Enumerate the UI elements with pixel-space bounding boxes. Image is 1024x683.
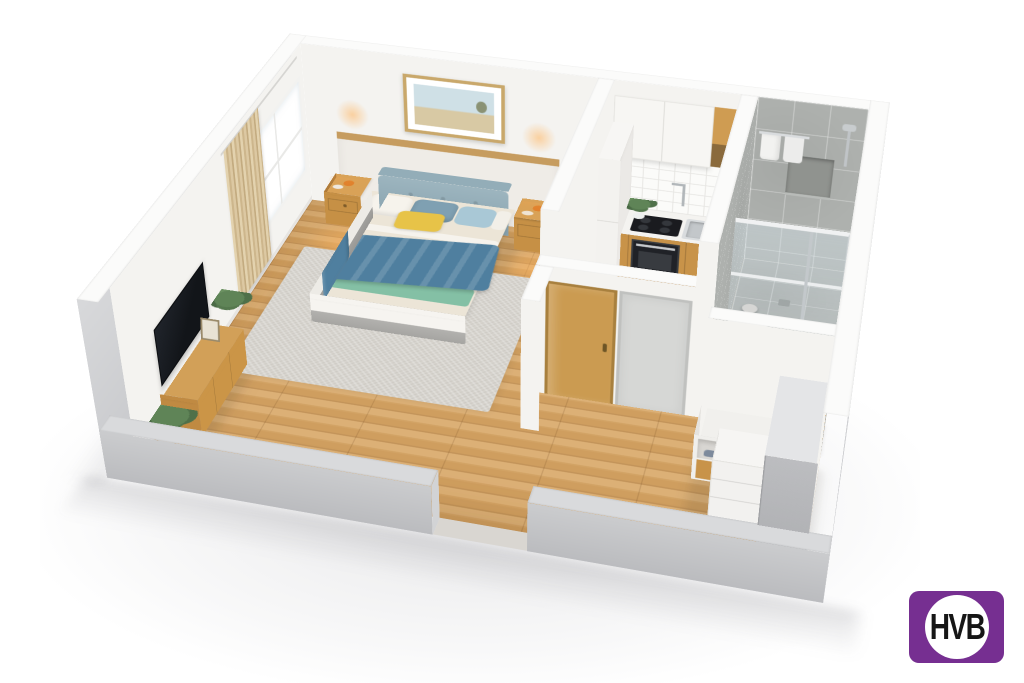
cabinet-seam (683, 242, 686, 278)
towel-2 (783, 137, 805, 164)
decor-shell (521, 210, 535, 216)
hvb-logo-circle: HVB (925, 595, 989, 659)
hvb-logo-badge: HVB (909, 591, 1004, 663)
apartment-plan (107, 189, 868, 604)
hall-wall-with-doors (534, 265, 715, 419)
decor-dish (332, 184, 345, 189)
scene-3d (0, 0, 1024, 683)
picture-art (413, 84, 494, 134)
gray-door (615, 291, 693, 420)
drawer-knob (343, 204, 347, 207)
wooden-door (544, 280, 617, 409)
shower-head (842, 124, 857, 132)
cabinet-door-seam (661, 102, 665, 161)
sconce-left (335, 98, 369, 132)
oven-handle (636, 243, 675, 251)
door-handle (603, 343, 607, 352)
picture-tree (476, 101, 487, 114)
pillar-south (520, 299, 540, 431)
hvb-logo-text: HVB (929, 606, 984, 648)
floorplan-render: HVB (0, 0, 1024, 683)
towel-1 (760, 134, 782, 161)
framed-picture (403, 73, 505, 144)
glass-rail (731, 272, 842, 291)
sconce-right (522, 120, 557, 155)
photo-frame (200, 317, 220, 342)
